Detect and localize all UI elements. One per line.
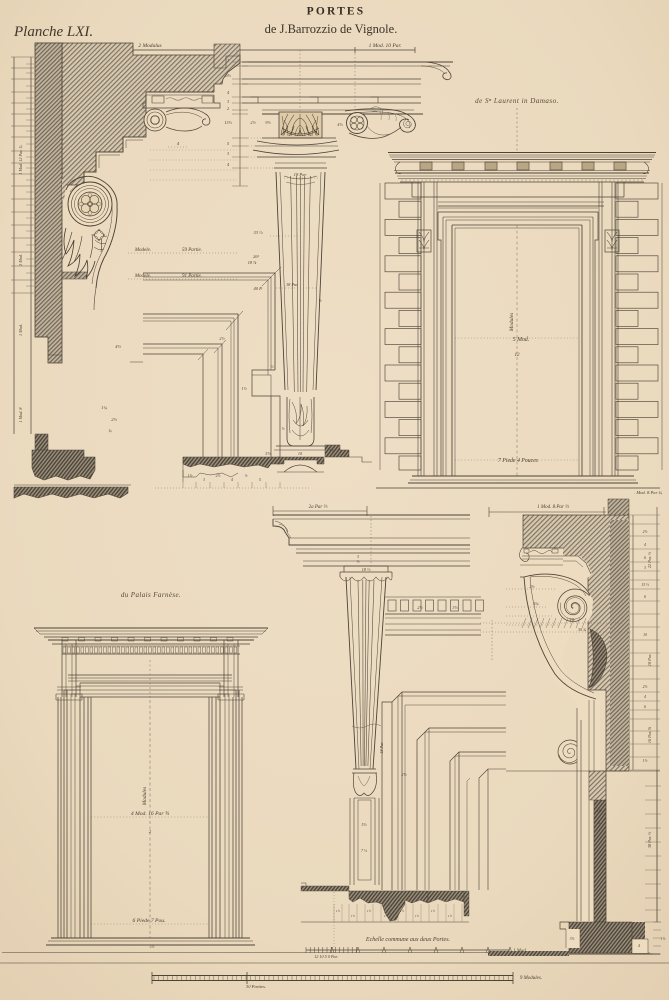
svg-text:2½: 2½ [643,685,648,689]
svg-text:7 Piede 4 Pouces: 7 Piede 4 Pouces [498,457,539,464]
svg-text:12 10 5 0 Par.: 12 10 5 0 Par. [314,954,338,959]
svg-text:½: ½ [357,559,360,564]
svg-text:Planche LXI.: Planche LXI. [13,24,93,40]
svg-text:6⅔: 6⅔ [225,73,231,78]
svg-text:5 Mod.: 5 Mod. [513,337,529,343]
svg-text:1 Mod. 12 Par. ¾: 1 Mod. 12 Par. ¾ [18,145,23,175]
svg-text:2½: 2½ [111,417,117,422]
svg-text:4: 4 [227,162,229,167]
svg-text:4¼: 4¼ [534,601,539,606]
svg-text:4: 4 [227,90,229,95]
svg-text:5: 5 [227,141,229,146]
svg-text:9 Modules.: 9 Modules. [520,976,542,981]
svg-text:de Sⁿ Laurent in Damaso.: de Sⁿ Laurent in Damaso. [475,97,559,105]
svg-text:1½: 1½ [400,909,405,913]
svg-text:18 Par: 18 Par [379,742,384,754]
svg-text:5½: 5½ [150,945,155,949]
svg-text:1½: 1½ [351,914,356,918]
svg-text:91 Partie.: 91 Partie. [182,274,202,279]
svg-text:10 Par.: 10 Par. [647,654,652,666]
svg-text:1½: 1½ [188,474,193,478]
svg-text:1½: 1½ [448,914,453,918]
svg-text:4: 4 [638,944,640,948]
svg-text:33 ⅓: 33 ⅓ [253,230,263,235]
svg-text:Modele.: Modele. [134,274,151,279]
svg-text:3: 3 [644,566,646,570]
svg-text:6: 6 [644,595,646,599]
svg-text:de J.Barrozzio de Vignole.: de J.Barrozzio de Vignole. [265,22,398,36]
svg-text:26¹: 26¹ [253,254,259,259]
svg-text:1 Mod. 8.Par ⅔: 1 Mod. 8.Par ⅔ [537,505,569,510]
svg-text:5½: 5½ [329,448,335,453]
svg-text:2½: 2½ [643,530,648,534]
svg-text:59 Partie.: 59 Partie. [182,248,202,253]
svg-text:4 Mod. 16 Par ¾: 4 Mod. 16 Par ¾ [131,811,170,817]
svg-text:2½: 2½ [530,584,535,589]
svg-text:9½: 9½ [265,120,271,125]
svg-text:¾: ¾ [109,428,112,433]
svg-text:2 Mod.: 2 Mod. [18,254,23,266]
svg-text:30 ¾: 30 ¾ [578,627,586,632]
svg-text:2½: 2½ [216,474,221,478]
svg-text:Modele.: Modele. [134,248,151,253]
svg-text:1½: 1½ [661,937,666,941]
svg-text:6: 6 [644,556,646,560]
svg-text:1½: 1½ [384,914,389,918]
svg-text:16 Par. ⅞: 16 Par. ⅞ [647,727,652,743]
svg-text:12: 12 [515,353,521,358]
svg-text:4½: 4½ [570,617,575,622]
svg-text:6 Piede 7 Pou.: 6 Piede 7 Pou. [133,918,166,924]
svg-text:PORTES: PORTES [307,6,366,18]
svg-text:½: ½ [245,474,248,478]
svg-text:1½: 1½ [367,909,372,913]
svg-text:. Mod. 8.Par ¾: . Mod. 8.Par ¾ [634,490,662,495]
svg-text:1 Mod. 10 Par.: 1 Mod. 10 Par. [369,43,402,49]
svg-text:5½: 5½ [265,451,271,456]
svg-text:4: 4 [231,478,233,482]
svg-text:1½: 1½ [431,909,436,913]
svg-text:du Palais Farnèse.: du Palais Farnèse. [121,591,181,599]
svg-text:30 Parties.: 30 Parties. [246,984,266,989]
svg-text:Modules: Modules [509,313,515,333]
svg-text:1½: 1½ [336,909,341,913]
svg-text:2½: 2½ [401,772,407,777]
svg-text:13⅓: 13⅓ [224,120,232,125]
svg-text:5: 5 [259,478,261,482]
svg-text:4⅓: 4⅓ [337,122,343,127]
svg-text:38 Par. ⅔: 38 Par. ⅔ [647,831,652,848]
svg-text:4: 4 [644,543,646,547]
svg-text:6: 6 [644,705,646,709]
svg-text:1½: 1½ [415,914,420,918]
svg-text:5⅓: 5⅓ [362,822,367,827]
svg-text:18 Par: 18 Par [286,282,298,287]
svg-text:2a Par ⅔: 2a Par ⅔ [309,505,328,510]
svg-text:13 ⅓: 13 ⅓ [641,583,649,587]
svg-text:10: 10 [643,633,647,637]
svg-text:7 ⅓: 7 ⅓ [361,848,367,853]
svg-text:1: 1 [227,58,229,63]
svg-text:1½: 1½ [643,759,648,763]
svg-text:2½: 2½ [250,120,256,125]
svg-text:3: 3 [227,151,229,156]
svg-text:½: ½ [282,426,285,431]
svg-text:1½: 1½ [241,386,247,391]
svg-text:2½: 2½ [417,605,423,610]
svg-text:½: ½ [319,298,322,303]
svg-text:2 Modulus: 2 Modulus [138,43,161,49]
svg-text:3⅓: 3⅓ [452,605,458,610]
svg-text:40 P.: 40 P. [253,286,262,291]
svg-text:18 ⅓: 18 ⅓ [362,567,371,572]
svg-text:22 Par. ⅔: 22 Par. ⅔ [647,551,652,568]
svg-text:2½: 2½ [219,336,225,341]
svg-text:5: 5 [598,821,600,825]
svg-text:3: 3 [227,99,229,104]
svg-text:1 Mod. 8: 1 Mod. 8 [18,407,23,423]
svg-text:1 Mod.: 1 Mod. [18,324,23,336]
svg-text:2⅓: 2⅓ [597,808,602,813]
svg-text:Modules: Modules [142,787,148,807]
svg-text:Echelle commune aux deux Porte: Echelle commune aux deux Portes. [365,937,450,943]
svg-text:4½: 4½ [115,344,121,349]
svg-text:1¼: 1¼ [101,405,107,410]
svg-text:3: 3 [203,478,205,482]
svg-text:4: 4 [644,695,646,699]
svg-text:18 ⅞: 18 ⅞ [248,260,257,265]
svg-text:3½: 3½ [570,937,575,941]
svg-text:2: 2 [227,106,229,111]
